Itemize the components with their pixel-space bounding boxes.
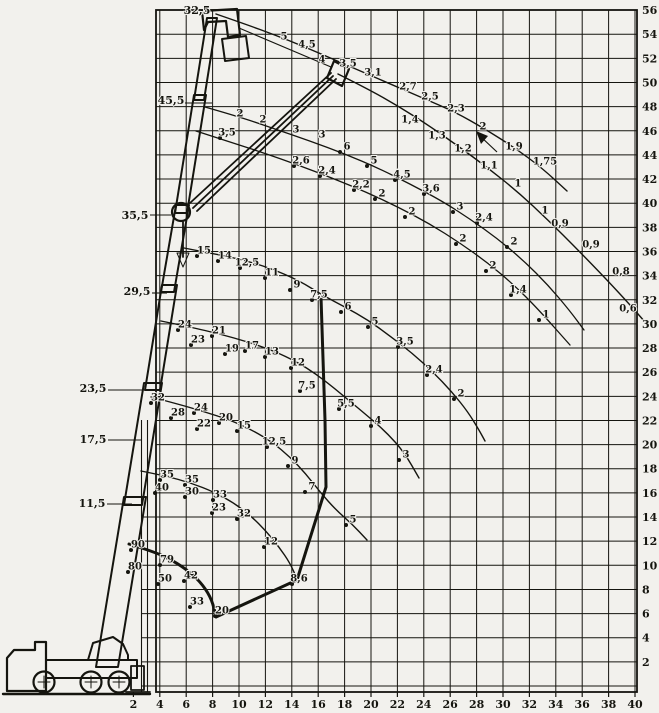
capacity-label: 9 <box>294 280 301 291</box>
boom-length-label: 11,5 <box>79 497 106 510</box>
y-tick-label: 22 <box>642 414 657 427</box>
capacity-label: 42 <box>184 571 198 582</box>
y-tick-label: 38 <box>642 221 658 234</box>
capacity-label: 5,5 <box>337 399 354 410</box>
capacity-label: 2 <box>379 189 386 200</box>
capacity-label: 20 <box>219 413 233 424</box>
x-tick-label: 8 <box>209 698 217 711</box>
y-tick-label: 2 <box>642 656 650 669</box>
truck-deck <box>46 660 137 678</box>
crane-load-chart-page: 2468101214161820222426283032343638405654… <box>0 0 659 713</box>
y-tick-label: 40 <box>642 197 658 210</box>
y-tick-label: 10 <box>642 559 658 572</box>
capacity-label: 30 <box>185 487 199 498</box>
x-tick-label: 14 <box>284 698 300 711</box>
curve-point-dot <box>339 310 343 314</box>
capacity-label: 2,4 <box>318 166 335 177</box>
load-chart: 2468101214161820222426283032343638405654… <box>0 0 659 713</box>
capacity-label: 40 <box>155 483 169 494</box>
capacity-label: 2,4 <box>475 213 492 224</box>
curve-point-dot <box>344 523 348 527</box>
x-tick-label: 16 <box>311 698 327 711</box>
y-tick-label: 42 <box>642 173 657 186</box>
curve-point-dot <box>373 197 377 201</box>
curve-point-dot <box>397 458 401 462</box>
capacity-label: 2 <box>409 207 416 218</box>
y-tick-label: 50 <box>642 77 658 90</box>
x-tick-label: 36 <box>575 698 591 711</box>
capacity-label: 3 <box>319 130 326 141</box>
capacity-label: 2,6 <box>292 156 309 167</box>
capacity-label: 3,5 <box>218 128 235 139</box>
capacity-label: 1,9 <box>505 142 522 153</box>
boom-length-label: 17,5 <box>80 433 107 446</box>
y-tick-label: 48 <box>642 101 658 114</box>
capacity-label: 24 <box>178 320 192 331</box>
capacity-label: 1,2 <box>454 144 471 155</box>
capacity-label: 6 <box>345 302 352 313</box>
capacity-label: 7 <box>309 482 316 493</box>
x-tick-label: 22 <box>390 698 405 711</box>
capacity-label: 23 <box>212 503 226 514</box>
y-tick-label: 14 <box>642 511 658 524</box>
capacity-label: 2,7 <box>399 82 416 93</box>
capacity-label: 32 <box>237 509 251 520</box>
capacity-label: 14 <box>218 251 232 262</box>
capacity-label: 35 <box>185 475 199 486</box>
y-tick-label: 24 <box>642 390 658 403</box>
curve-point-dot <box>303 490 307 494</box>
y-tick-label: 46 <box>642 125 658 138</box>
boom-length-label: 32,5 <box>184 4 211 17</box>
crane-illustration <box>3 9 349 694</box>
capacity-label: 2 <box>458 389 465 400</box>
capacity-label: 3,5 <box>339 59 356 70</box>
x-tick-label: 26 <box>443 698 459 711</box>
capacity-label: 2 <box>460 234 467 245</box>
capacity-label: 15 <box>197 246 211 257</box>
curve-point-dot <box>537 318 541 322</box>
curve-point-dot <box>288 288 292 292</box>
x-tick-label: 38 <box>601 698 617 711</box>
capacity-label: 1,3 <box>428 131 445 142</box>
x-tick-label: 28 <box>469 698 485 711</box>
curve-point-dot <box>365 164 369 168</box>
y-tick-label: 6 <box>642 608 650 621</box>
x-tick-label: 32 <box>522 698 537 711</box>
capacity-label: 12,5 <box>262 437 286 448</box>
y-tick-label: 20 <box>642 439 658 452</box>
capacity-label: 3 <box>293 125 300 136</box>
x-tick-label: 30 <box>495 698 511 711</box>
x-tick-label: 12 <box>258 698 273 711</box>
capacity-label: 2 <box>237 109 244 120</box>
capacity-label: 2 <box>480 122 487 133</box>
capacity-label: 17 <box>245 341 259 352</box>
x-tick-label: 18 <box>337 698 353 711</box>
boom-section-3 <box>145 285 177 390</box>
y-tick-label: 32 <box>642 294 657 307</box>
capacity-label: 21 <box>212 326 226 337</box>
capacity-label: 6 <box>344 142 351 153</box>
boom-length-label: 35,5 <box>122 209 149 222</box>
capacity-label: 4 <box>319 55 326 66</box>
capacity-label: 1,1 <box>480 161 497 172</box>
capacity-label: 79 <box>160 555 174 566</box>
curve-point-dot <box>484 269 488 273</box>
y-tick-label: 26 <box>642 366 658 379</box>
curve-point-dot <box>505 245 509 249</box>
capacity-label: 23 <box>191 335 205 346</box>
capacity-label: 22 <box>197 419 211 430</box>
curve-point-dot <box>366 325 370 329</box>
x-tick-label: 24 <box>416 698 432 711</box>
y-tick-label: 28 <box>642 342 658 355</box>
capacity-label: 19 <box>225 344 239 355</box>
x-tick-label: 2 <box>130 698 138 711</box>
capacity-label: 90 <box>131 540 145 551</box>
capacity-label: 12,5 <box>235 258 259 269</box>
truck-cab <box>7 642 46 691</box>
capacity-label: 35 <box>160 470 174 481</box>
capacity-label: 3 <box>457 202 464 213</box>
x-tick-label: 10 <box>231 698 247 711</box>
capacity-label: 4,5 <box>298 40 315 51</box>
capacity-label: 1,4 <box>509 285 526 296</box>
y-tick-label: 56 <box>642 4 658 17</box>
y-tick-label: 54 <box>642 28 658 41</box>
capacity-label: 0,9 <box>582 240 599 251</box>
capacity-label: 3,6 <box>422 184 439 195</box>
y-tick-label: 4 <box>642 632 650 645</box>
curve-point-dot <box>454 242 458 246</box>
capacity-label: 2,4 <box>425 365 442 376</box>
capacity-label: 13 <box>265 347 279 358</box>
capacity-label: 2,2 <box>352 180 369 191</box>
y-tick-label: 16 <box>642 487 658 500</box>
x-tick-label: 40 <box>627 698 643 711</box>
y-tick-label: 12 <box>642 535 657 548</box>
capacity-label: 7,5 <box>298 381 315 392</box>
capacity-label: 33 <box>190 597 204 608</box>
x-tick-label: 34 <box>548 698 564 711</box>
capacity-label: 4,5 <box>393 170 410 181</box>
capacity-label: 12 <box>291 358 305 369</box>
y-tick-label: 30 <box>642 318 658 331</box>
capacity-label: 1 <box>543 310 550 321</box>
y-tick-label: 44 <box>642 149 658 162</box>
capacity-label: 28 <box>171 408 185 419</box>
boom-length-label: 45,5 <box>158 94 185 107</box>
boom-length-label: 23,5 <box>80 382 107 395</box>
curve-point-dot <box>338 150 342 154</box>
boom-section-5 <box>175 95 206 213</box>
capacity-label: 32 <box>151 393 165 404</box>
y-tick-label: 18 <box>642 463 658 476</box>
capacity-label: 8,6 <box>290 574 307 585</box>
capacity-label: 2 <box>490 261 497 272</box>
capacity-label: 3,1 <box>364 68 381 79</box>
boom-length-label: 29,5 <box>124 285 151 298</box>
capacity-label: 33 <box>213 490 227 501</box>
load-curve-boom-45-upper <box>205 107 584 330</box>
capacity-label: 2 <box>260 115 267 126</box>
capacity-label: 80 <box>128 562 142 573</box>
curve-point-dot <box>452 397 456 401</box>
capacity-label: 2,5 <box>421 92 438 103</box>
capacity-label: 3,5 <box>396 337 413 348</box>
curve-point-dot <box>451 210 455 214</box>
chart-back-layer <box>107 10 645 697</box>
capacity-label: 0,9 <box>551 219 568 230</box>
y-tick-label: 34 <box>642 270 658 283</box>
curve-point-dot <box>369 424 373 428</box>
capacity-label: 11 <box>265 268 279 279</box>
y-tick-label: 8 <box>642 583 650 596</box>
capacity-label: 2,3 <box>447 104 464 115</box>
capacity-label: 2 <box>511 237 518 248</box>
capacity-label: 50 <box>158 574 172 585</box>
capacity-label: 12 <box>264 537 278 548</box>
capacity-label: 1 <box>542 206 549 217</box>
capacity-label: 1,4 <box>401 115 418 126</box>
capacity-label: 3 <box>403 450 410 461</box>
capacity-label: 9 <box>292 456 299 467</box>
boom-section-6 <box>194 18 217 100</box>
capacity-label: 20 <box>215 606 229 617</box>
capacity-label: 5 <box>350 515 357 526</box>
capacity-label: 15 <box>237 421 251 432</box>
capacity-label: 7,5 <box>310 290 327 301</box>
capacity-label: 0,8 <box>612 267 629 278</box>
curve-point-dot <box>286 464 290 468</box>
capacity-label: 4 <box>375 416 382 427</box>
curve-point-dot <box>403 215 407 219</box>
x-tick-label: 4 <box>156 698 164 711</box>
capacity-label: 0,6 <box>619 304 636 315</box>
capacity-label: 1,75 <box>533 157 557 168</box>
boom-head-block <box>222 36 249 61</box>
capacity-label: 5 <box>281 32 288 43</box>
x-tick-label: 6 <box>182 698 190 711</box>
y-tick-label: 52 <box>642 52 657 65</box>
capacity-label: 24 <box>194 403 208 414</box>
capacity-label: 5 <box>372 317 379 328</box>
capacity-label: 5 <box>371 156 378 167</box>
x-tick-label: 20 <box>363 698 379 711</box>
capacity-label: 1 <box>515 179 522 190</box>
y-tick-label: 36 <box>642 245 658 258</box>
